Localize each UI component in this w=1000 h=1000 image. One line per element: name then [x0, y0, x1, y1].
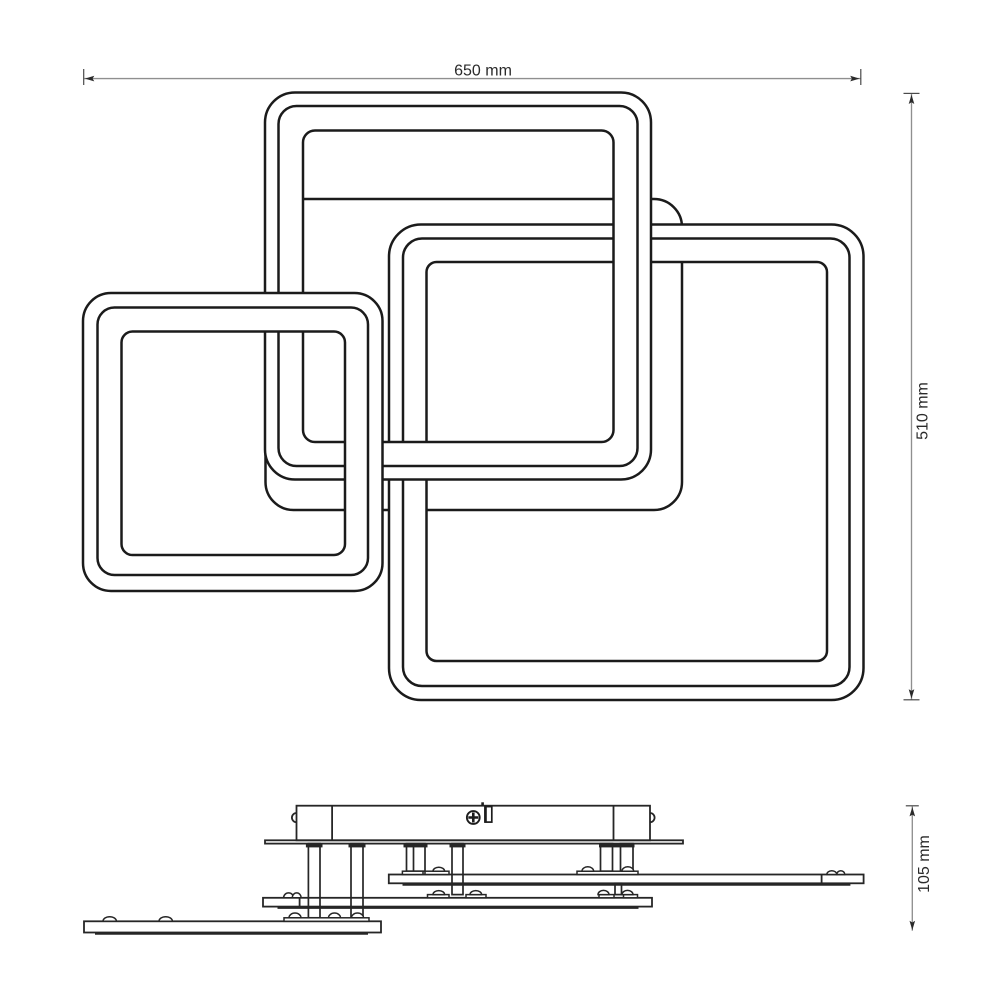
svg-text:510 mm: 510 mm	[915, 382, 932, 440]
svg-text:650 mm: 650 mm	[454, 62, 512, 79]
svg-text:105 mm: 105 mm	[916, 835, 933, 893]
